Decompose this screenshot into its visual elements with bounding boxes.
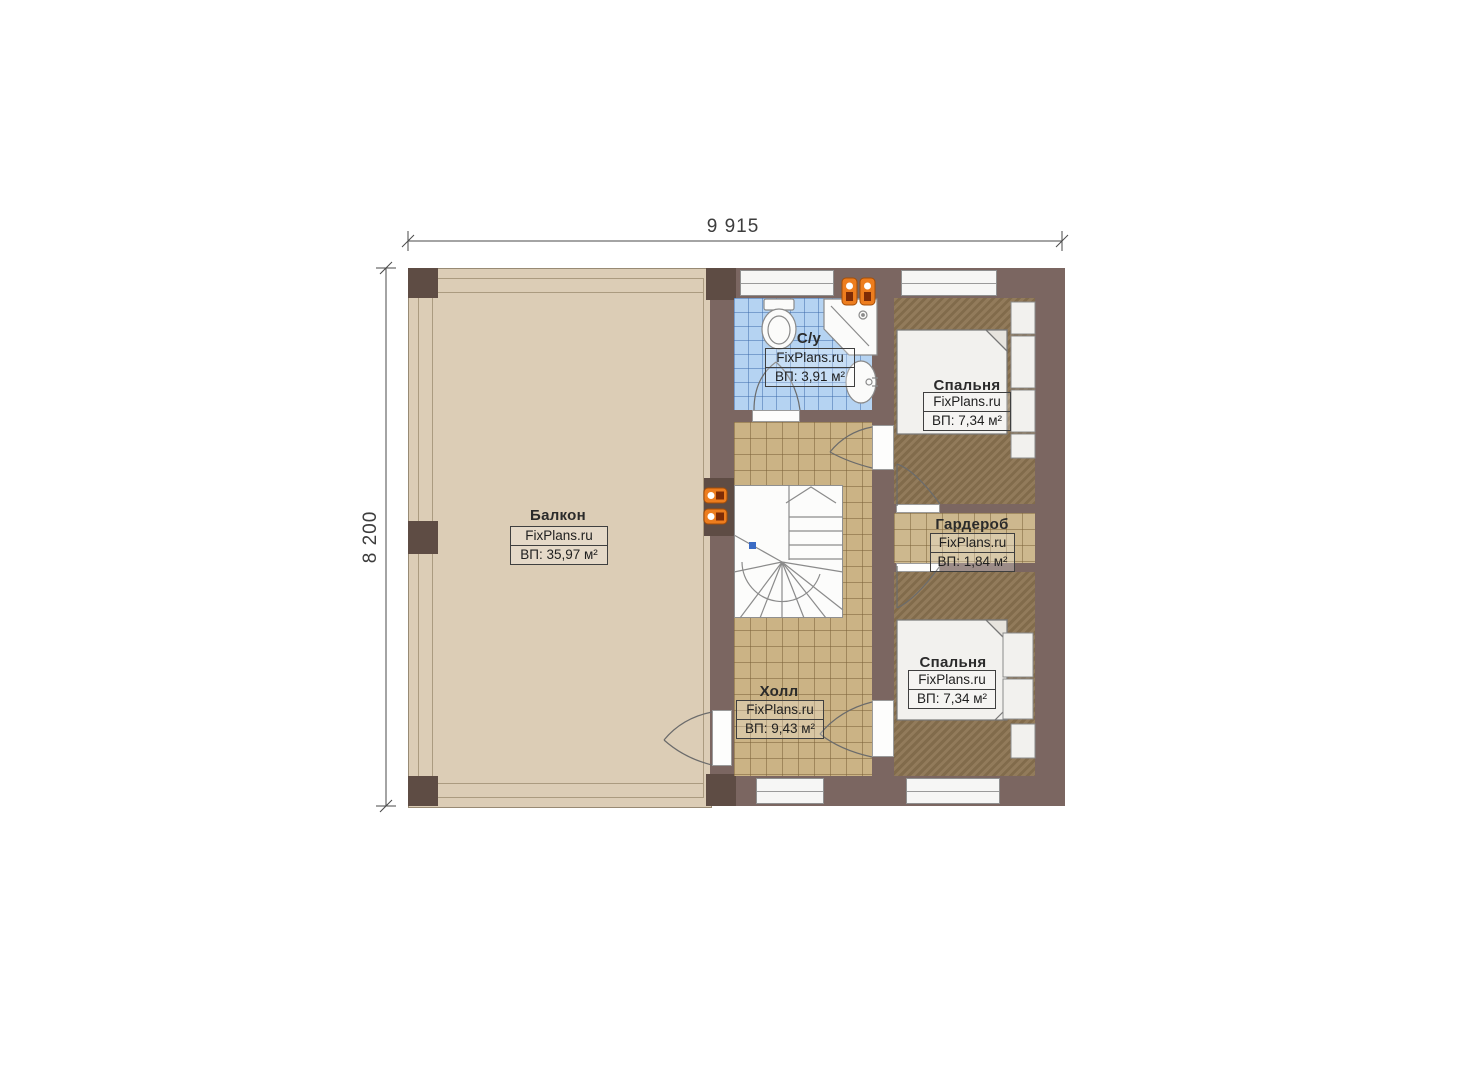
area-text: ВП: 3,91 м² — [766, 368, 854, 386]
radiator-icon — [842, 278, 857, 305]
watermark-text: FixPlans.ru — [511, 527, 607, 546]
watermark-text: FixPlans.ru — [924, 393, 1010, 412]
info-box-balcony: FixPlans.ru ВП: 35,97 м² — [510, 526, 608, 565]
room-label-bedroom-bottom: Спальня — [893, 654, 1013, 671]
floor-plan: 9 915 8 200 Балкон FixPlans.ru ВП: 35,97… — [0, 0, 1474, 1080]
room-label-bathroom: С/у — [779, 330, 839, 347]
watermark-text: FixPlans.ru — [931, 534, 1014, 553]
radiator-icon — [860, 278, 875, 305]
dimension-label-left: 8 200 — [360, 497, 382, 577]
info-box-hall: FixPlans.ru ВП: 9,43 м² — [736, 700, 824, 739]
bedroom-bottom-furniture — [1003, 633, 1035, 758]
dimension-label-top: 9 915 — [693, 216, 773, 238]
area-text: ВП: 35,97 м² — [511, 546, 607, 564]
plan-linework — [0, 0, 1474, 1080]
area-text: ВП: 9,43 м² — [737, 720, 823, 738]
info-box-wardrobe: FixPlans.ru ВП: 1,84 м² — [930, 533, 1015, 572]
area-text: ВП: 7,34 м² — [924, 412, 1010, 430]
area-text: ВП: 7,34 м² — [909, 690, 995, 708]
watermark-text: FixPlans.ru — [766, 349, 854, 368]
info-box-bedroom-bottom: FixPlans.ru ВП: 7,34 м² — [908, 670, 996, 709]
stairs-section-marker — [749, 542, 756, 549]
info-box-bathroom: FixPlans.ru ВП: 3,91 м² — [765, 348, 855, 387]
room-label-hall: Холл — [729, 683, 829, 700]
room-label-wardrobe: Гардероб — [912, 516, 1032, 533]
radiator-icon — [704, 509, 727, 524]
info-box-bedroom-top: FixPlans.ru ВП: 7,34 м² — [923, 392, 1011, 431]
watermark-text: FixPlans.ru — [909, 671, 995, 690]
room-label-balcony: Балкон — [498, 507, 618, 524]
watermark-text: FixPlans.ru — [737, 701, 823, 720]
area-text: ВП: 1,84 м² — [931, 553, 1014, 571]
stairs-treads — [734, 485, 843, 618]
radiator-icon — [704, 488, 727, 503]
